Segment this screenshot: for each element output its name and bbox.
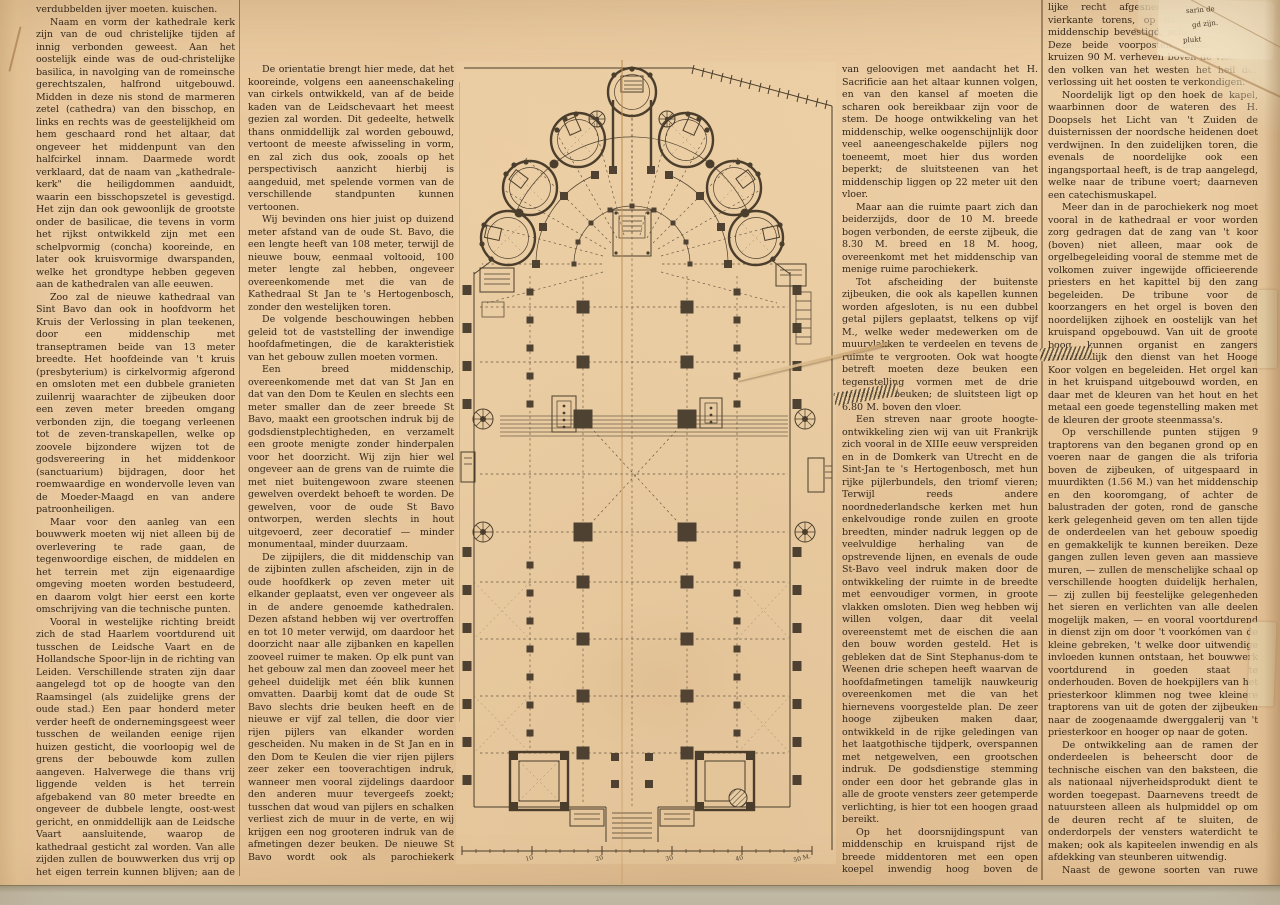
column-4: lijke recht afgesneden en door de vierka…: [1048, 2, 1258, 878]
tape-repair-hatch: [1040, 346, 1093, 362]
paragraph: Wij bevinden ons hier juist op duizend m…: [248, 214, 454, 314]
paragraph: Op het doorsnijdingspunt van middenschip…: [842, 827, 1038, 877]
paper-edge-left: [0, 0, 30, 885]
paragraph: Naast de gewone soorten van ruwe bakstee…: [1048, 865, 1258, 879]
paper-edge-right: [1264, 0, 1280, 885]
apse-turret: [659, 111, 675, 127]
paragraph: Maar voor den aanleg van een bouwwerk mo…: [36, 517, 235, 617]
column-2: De orientatie brengt hier mede, dat het …: [248, 64, 454, 864]
paragraph: De ontwikkeling aan de ramen der onderde…: [1048, 740, 1258, 865]
apse-turret: [589, 111, 605, 127]
paragraph: De volgende beschouwingen hebben geleid …: [248, 314, 454, 364]
paragraph: Zoo zal de nieuwe kathedraal van Sint Ba…: [36, 292, 235, 517]
cathedral-floor-plan: 10 20 30 40 50 M.: [456, 62, 836, 864]
paragraph: Meer dan in de parochiekerk nog moet voo…: [1048, 202, 1258, 427]
newspaper-page: verdubbelden ijver moeten. kuischen. Naa…: [0, 0, 1280, 905]
paragraph: De orientatie brengt hier mede, dat het …: [248, 64, 454, 214]
torn-text-fragment: plukt: [1183, 36, 1202, 45]
paragraph: Vooral in westelijke richting breidt zic…: [36, 617, 235, 879]
column-divider: [239, 0, 240, 876]
torn-corner-patch: [1157, 0, 1275, 60]
paragraph: Op verschillende punten stijgen 9 trapto…: [1048, 427, 1258, 740]
paragraph: verdubbelden ijver moeten. kuischen.: [36, 4, 235, 17]
paragraph: De zijpijlers, die dit middenschip van d…: [248, 552, 454, 865]
page-fold-crease: [1041, 0, 1043, 880]
column-3: van geloovigen met aandacht het H. Sacri…: [842, 64, 1038, 876]
paragraph: van geloovigen met aandacht het H. Sacri…: [842, 64, 1038, 202]
column-1: verdubbelden ijver moeten. kuischen. Naa…: [36, 4, 235, 878]
paragraph: Naam en vorm der kathedrale kerk zijn va…: [36, 17, 235, 292]
paragraph: Maar aan die ruimte paart zich dan beide…: [842, 202, 1038, 277]
vertical-fold-crease: [621, 60, 623, 884]
paragraph: Een streven naar groote hoogte-ontwikkel…: [842, 414, 1038, 827]
paragraph: Een breed middenschip, overeenkomende me…: [248, 364, 454, 552]
scanner-background-strip: [0, 885, 1280, 905]
